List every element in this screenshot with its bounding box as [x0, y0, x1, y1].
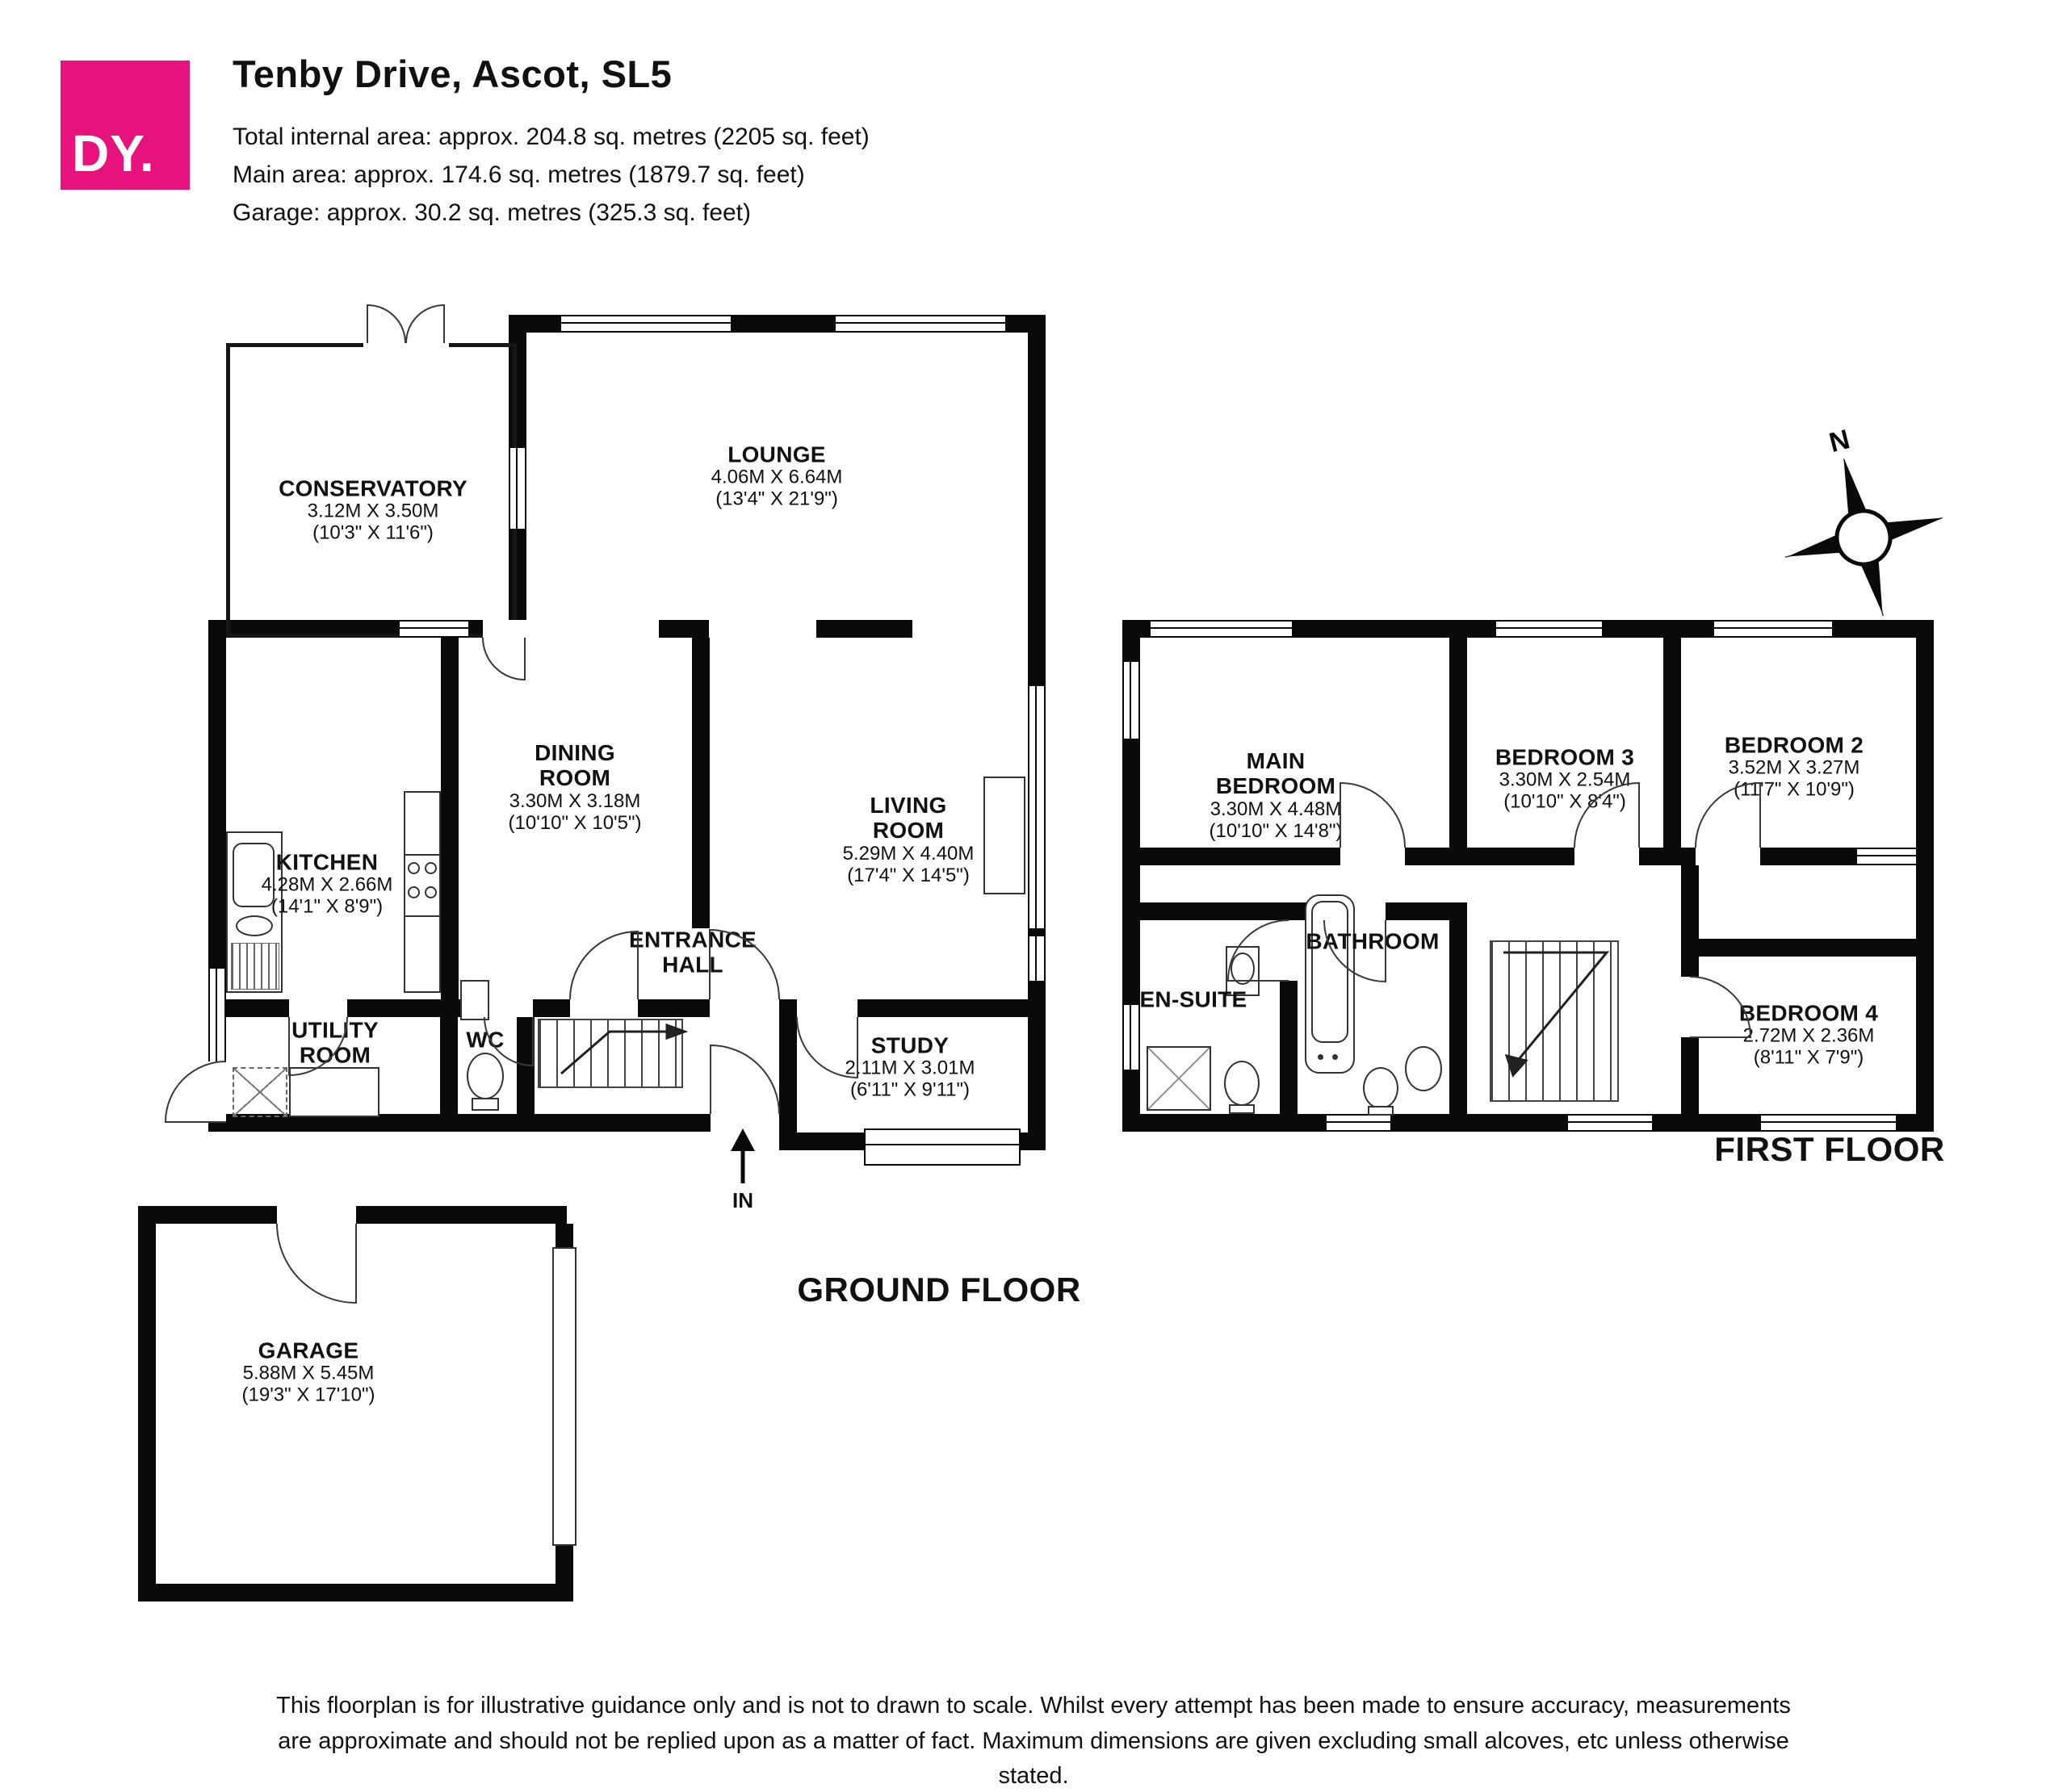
door-arc [1340, 783, 1405, 848]
door-arc [277, 1224, 356, 1303]
stairs-arrow-head [667, 1025, 685, 1038]
stairs-arrow-head [1507, 1056, 1526, 1075]
door-arc [797, 1017, 857, 1078]
door-arc [166, 1061, 226, 1122]
entrance-arrow-icon [731, 1128, 755, 1183]
door-arc [570, 932, 638, 999]
door-arc [1324, 920, 1386, 982]
door-arc [711, 1045, 779, 1114]
door-arc [367, 305, 405, 343]
stairs-arrow [561, 1032, 669, 1074]
compass-rose-icon: N [1758, 407, 1964, 636]
stairs-arrow [1503, 953, 1607, 1062]
compass-north-label: N [1826, 424, 1853, 458]
floorplan-page: DY. Tenby Drive, Ascot, SL5 Total intern… [0, 0, 2067, 1792]
door-arc [406, 305, 444, 343]
plan-overlay: N [0, 0, 2067, 1792]
door-arc [1228, 920, 1289, 981]
door-arc [1690, 977, 1750, 1037]
door-arc [1696, 783, 1760, 848]
door-arc [1574, 783, 1639, 848]
door-arc [484, 1017, 533, 1066]
door-arc [483, 638, 525, 680]
door-arc [289, 1017, 347, 1075]
door-arc [710, 930, 779, 999]
